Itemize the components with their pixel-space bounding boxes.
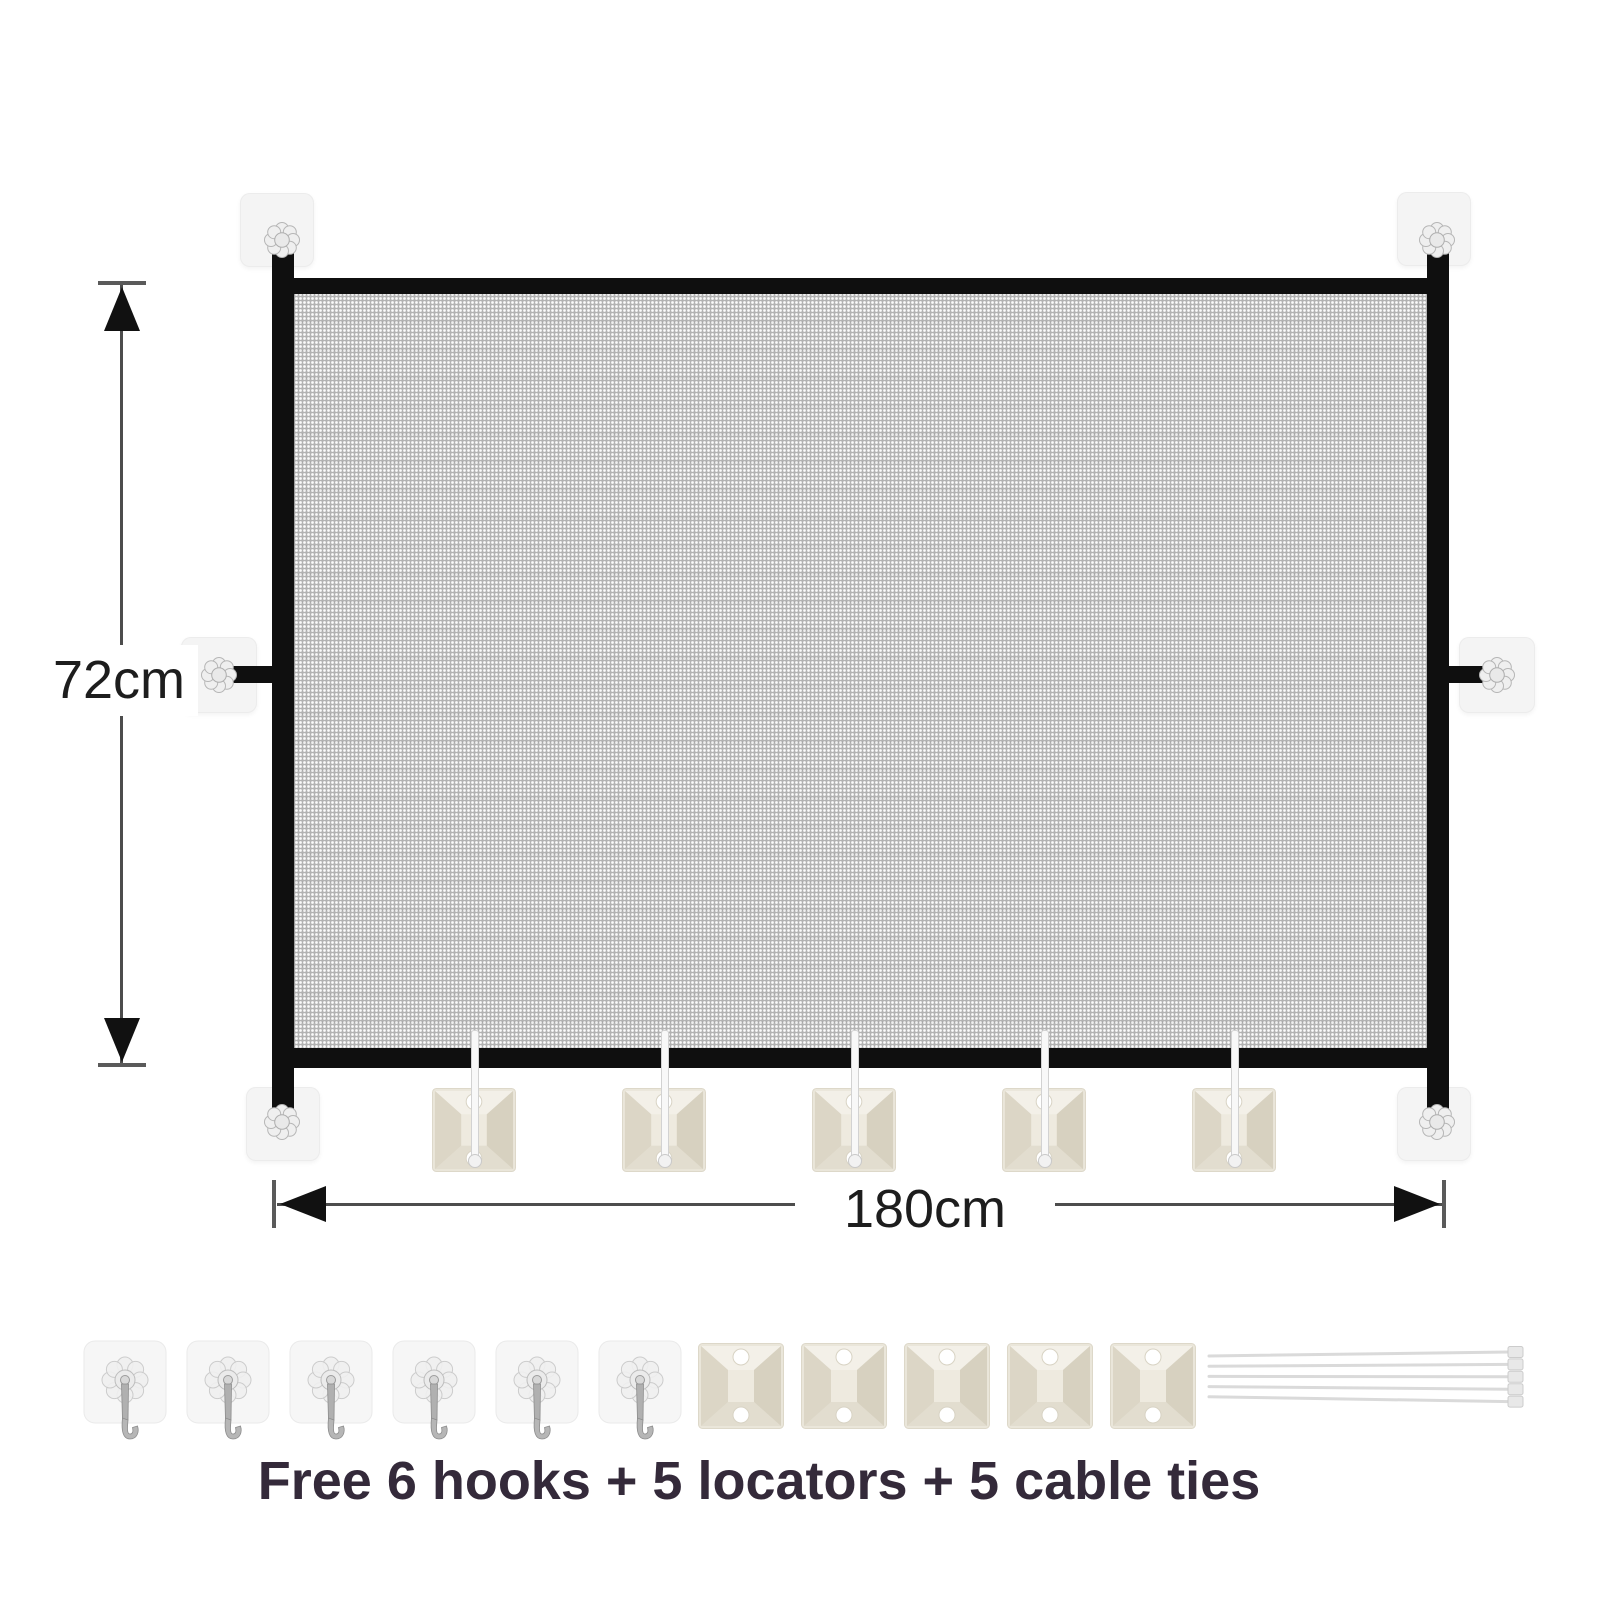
locator-mount-icon <box>904 1343 990 1429</box>
locator-mount-icon <box>1110 1343 1196 1429</box>
caption: Free 6 hooks + 5 locators + 5 cable ties <box>99 1452 1419 1511</box>
cable-ties-icon <box>1203 1345 1538 1415</box>
locator-mount-icon <box>698 1343 784 1429</box>
locator-mount-icon <box>1007 1343 1093 1429</box>
pet-gate-product-image: 72cm 180cm <box>0 0 1600 1600</box>
locator-mount-icon <box>801 1343 887 1429</box>
